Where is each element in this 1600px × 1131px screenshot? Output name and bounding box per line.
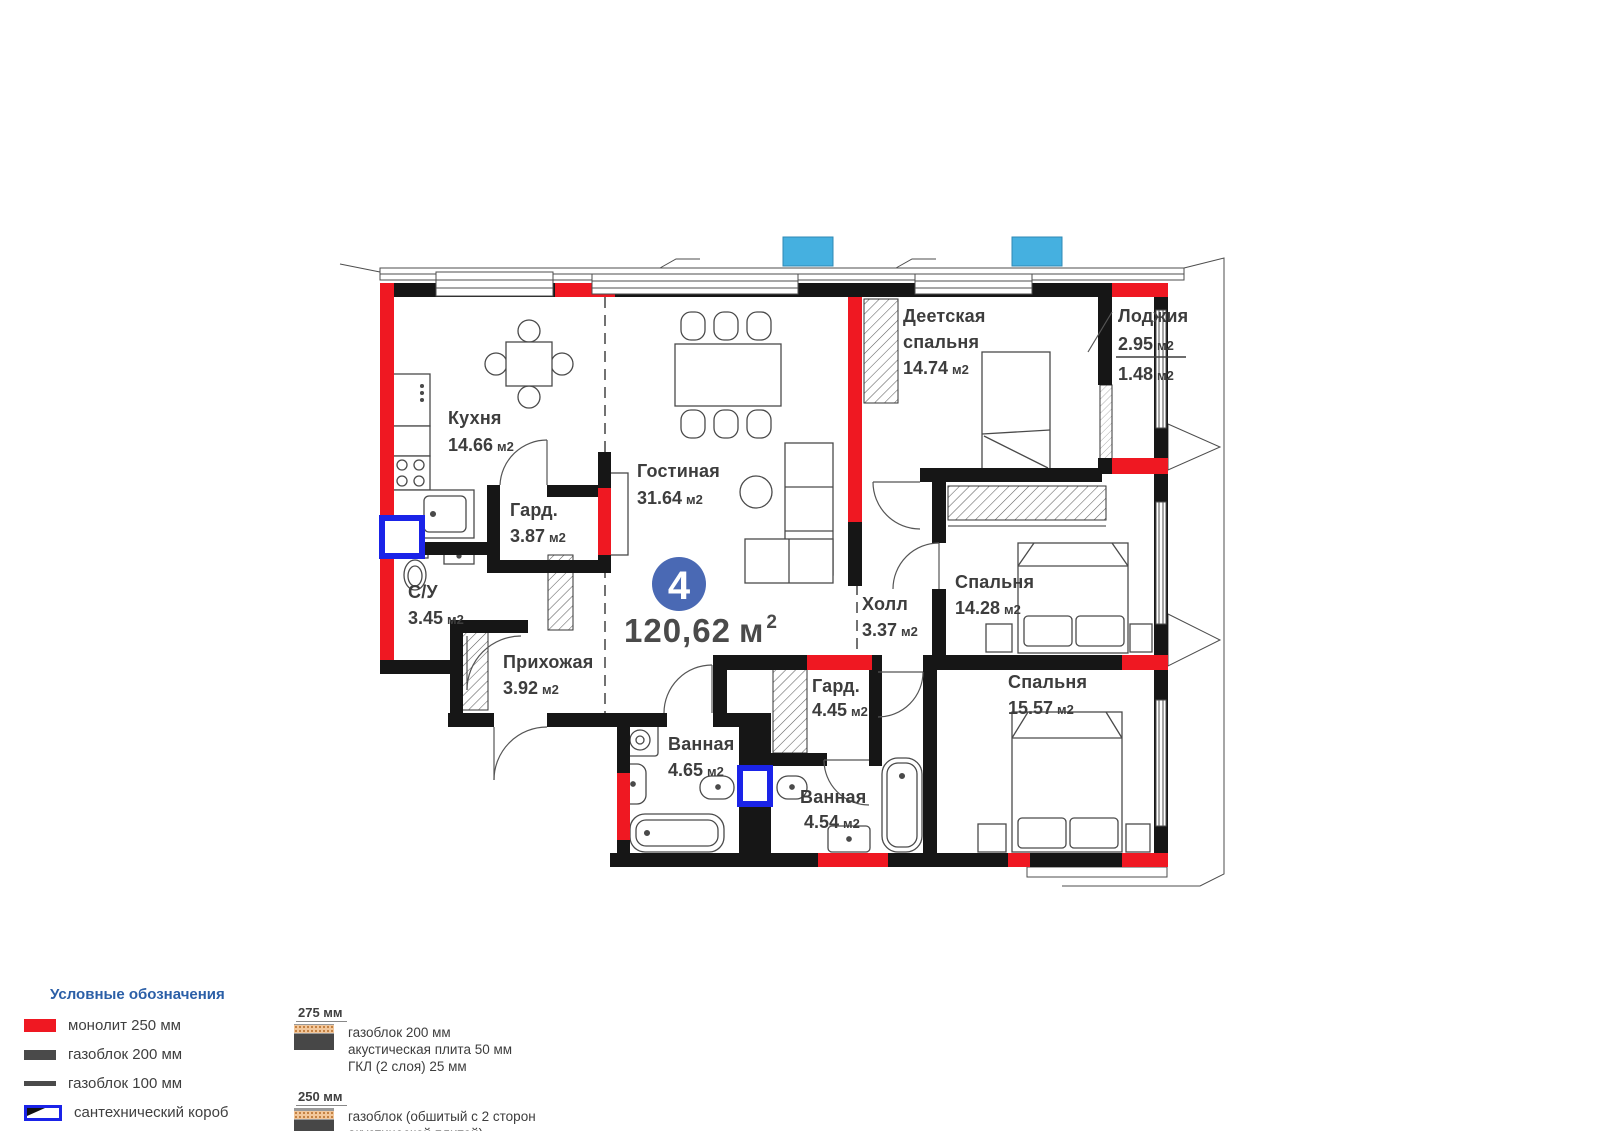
- wall-thickness-label: 275 мм: [296, 1005, 347, 1022]
- ac-place-icon: [783, 237, 1062, 266]
- wall-275-swatch-icon: [294, 1024, 334, 1050]
- window-icon: [1156, 700, 1166, 826]
- door-icon: [664, 665, 712, 713]
- room-label-loggia: Лоджия 2.95м2 1.48м2: [1116, 306, 1188, 384]
- svg-text:14.28м2: 14.28м2: [955, 598, 1021, 618]
- svg-text:4.45м2: 4.45м2: [812, 700, 868, 720]
- svg-text:14.74м2: 14.74м2: [903, 358, 969, 378]
- door-icon: [494, 727, 547, 780]
- wall-types-legend: 275 мм газоблок 200 мм акустическая плит…: [290, 1004, 620, 1131]
- legend-item-monolith: монолит 250 мм: [24, 1017, 274, 1034]
- wall-type-275: 275 мм газоблок 200 мм акустическая плит…: [290, 1004, 620, 1075]
- svg-text:14.66м2: 14.66м2: [448, 435, 514, 455]
- wall-type-description: газоблок 200 мм акустическая плита 50 мм…: [348, 1022, 620, 1075]
- svg-text:3.92м2: 3.92м2: [503, 678, 559, 698]
- door-icon: [893, 543, 939, 589]
- svg-text:Деетская: Деетская: [903, 306, 986, 326]
- plumbing-box-swatch-icon: [24, 1105, 62, 1121]
- unit-badge: 4: [652, 557, 706, 611]
- total-area: 120,62м2: [624, 612, 778, 649]
- window-icon: [915, 274, 1032, 294]
- svg-text:4.54м2: 4.54м2: [804, 812, 860, 832]
- svg-text:Спальня: Спальня: [955, 572, 1034, 592]
- svg-text:Спальня: Спальня: [1008, 672, 1087, 692]
- room-label-wardrobe-445: Гард. 4.45м2: [812, 676, 868, 720]
- room-label-wardrobe-387: Гард. 3.87м2: [510, 500, 566, 546]
- svg-text:спальня: спальня: [903, 332, 979, 352]
- svg-text:С/У: С/У: [408, 582, 438, 602]
- svg-text:31.64м2: 31.64м2: [637, 488, 703, 508]
- room-label-wc: С/У 3.45м2: [408, 582, 464, 628]
- svg-text:Лоджия: Лоджия: [1118, 306, 1188, 326]
- room-label-bathroom-454: Ванная 4.54м2: [800, 787, 866, 832]
- wall-thickness-label: 250 мм: [296, 1089, 347, 1106]
- svg-text:Гард.: Гард.: [812, 676, 860, 696]
- svg-text:4.65м2: 4.65м2: [668, 760, 724, 780]
- floor-plan-page: Кухня 14.66м2 Гостиная 31.64м2 Деетская …: [0, 0, 1600, 1131]
- monolith-swatch-icon: [24, 1019, 56, 1032]
- svg-text:3.87м2: 3.87м2: [510, 526, 566, 546]
- floor-plan: Кухня 14.66м2 Гостиная 31.64м2 Деетская …: [0, 0, 1600, 1131]
- door-icon: [878, 672, 923, 717]
- svg-text:Кухня: Кухня: [448, 408, 502, 428]
- dining-table-icon: [675, 312, 781, 438]
- tv-stand-icon: [609, 473, 628, 555]
- window-icon: [1156, 502, 1166, 624]
- kitchen-counter-icon: [392, 374, 474, 538]
- legend-item-gasblock-100: газоблок 100 мм: [24, 1075, 274, 1092]
- gasblock-200-swatch-icon: [24, 1050, 56, 1060]
- room-label-living: Гостиная 31.64м2: [637, 461, 720, 508]
- svg-text:3.45м2: 3.45м2: [408, 608, 464, 628]
- svg-text:4: 4: [668, 564, 691, 608]
- wall-type-description: газоблок (обшитый с 2 сторон акустическо…: [348, 1106, 620, 1131]
- svg-text:Прихожая: Прихожая: [503, 652, 593, 672]
- svg-text:15.57м2: 15.57м2: [1008, 698, 1074, 718]
- legend-title: Условные обозначения: [50, 986, 274, 1003]
- room-label-kitchen: Кухня 14.66м2: [448, 408, 514, 455]
- svg-text:3.37м2: 3.37м2: [862, 620, 918, 640]
- door-icon: [873, 482, 920, 529]
- window-icon: [436, 272, 553, 296]
- legend-item-gasblock-200: газоблок 200 мм: [24, 1046, 274, 1063]
- room-label-hall: Холл 3.37м2: [862, 594, 918, 640]
- legend: Условные обозначения монолит 250 мм газо…: [24, 986, 274, 1131]
- svg-text:Ванная: Ванная: [800, 787, 866, 807]
- window-icon: [592, 274, 798, 294]
- gasblock-100-swatch-icon: [24, 1081, 56, 1086]
- svg-text:Гард.: Гард.: [510, 500, 558, 520]
- legend-item-plumbing-box: сантехнический короб: [24, 1104, 274, 1121]
- room-label-hallway: Прихожая 3.92м2: [503, 652, 593, 698]
- room-label-bathroom-465: Ванная 4.65м2: [668, 734, 734, 780]
- bed-icon: [978, 712, 1150, 852]
- svg-text:Гостиная: Гостиная: [637, 461, 720, 481]
- room-label-bedroom-1557: Спальня 15.57м2: [1008, 672, 1087, 718]
- svg-text:Холл: Холл: [862, 594, 908, 614]
- bed-icon: [986, 543, 1152, 653]
- svg-text:Ванная: Ванная: [668, 734, 734, 754]
- wall-type-250: 250 мм газоблок (обшитый с 2 сторон акус…: [290, 1088, 620, 1131]
- wall-250-swatch-icon: [294, 1108, 334, 1131]
- child-bed-icon: [982, 352, 1050, 470]
- kitchen-table-icon: [485, 320, 573, 408]
- room-label-children-bedroom: Деетская спальня 14.74м2: [903, 306, 986, 378]
